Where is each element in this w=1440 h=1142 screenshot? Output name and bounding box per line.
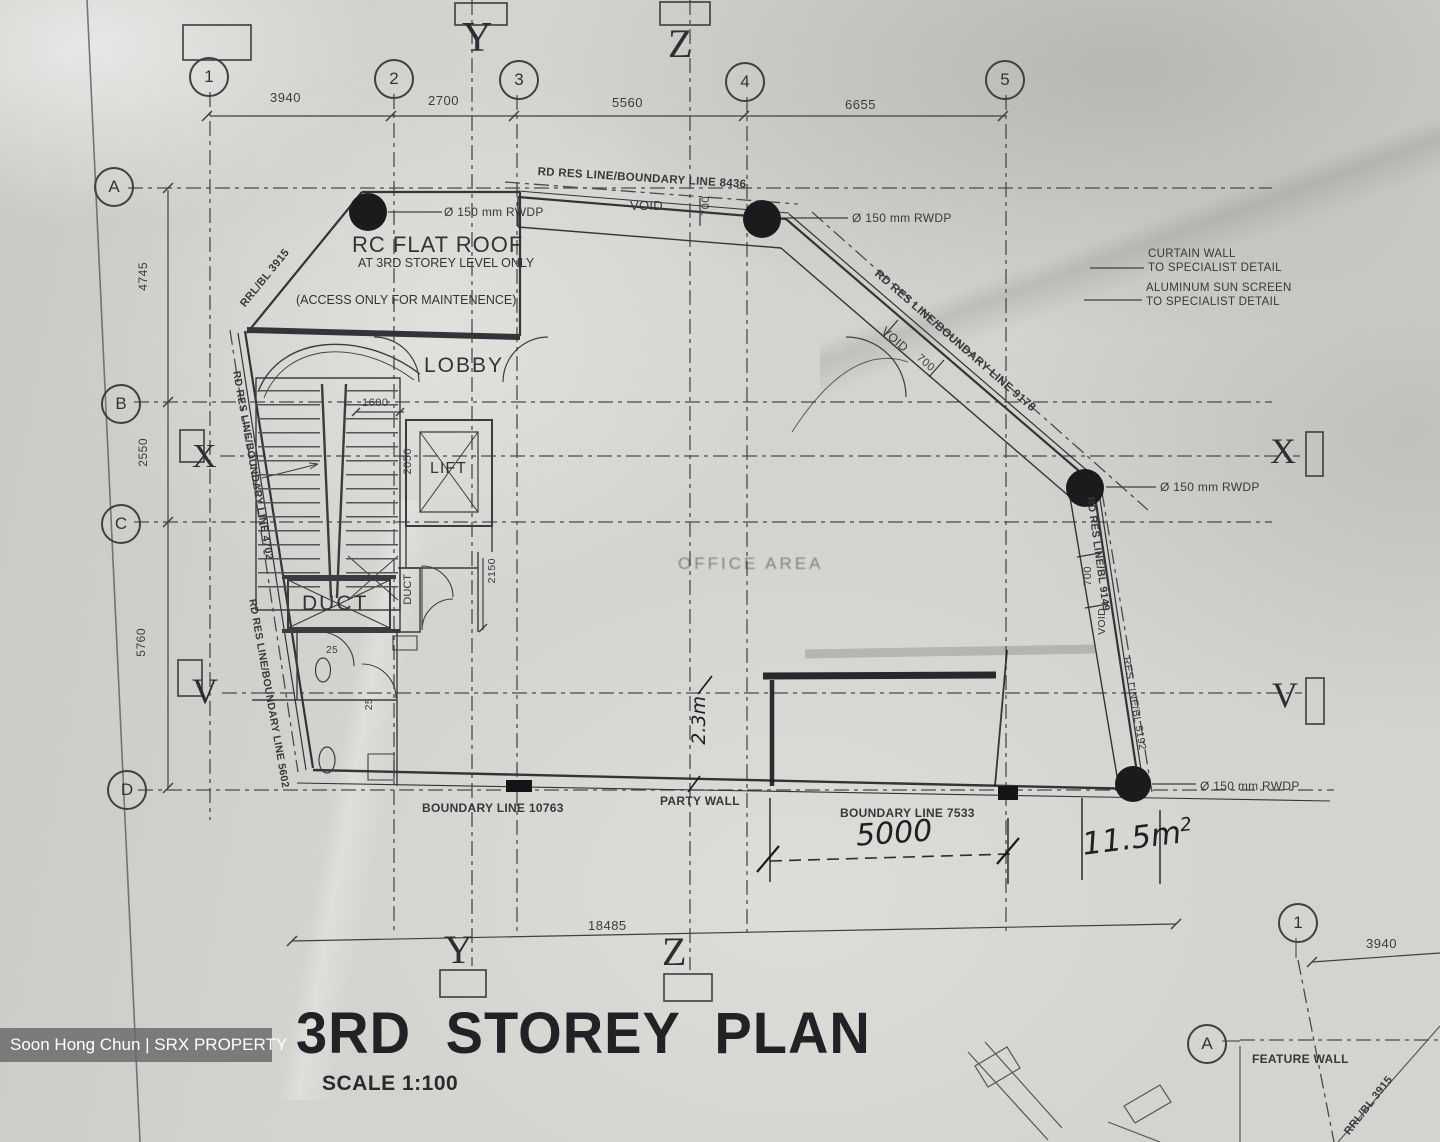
adjacent-grid-column-bubble: 1 [1278, 903, 1318, 943]
feature-wall-note: FEATURE WALL [1252, 1052, 1349, 1066]
grid-column-label: 1 [1293, 913, 1302, 933]
stair-treads-right [346, 390, 398, 600]
grid-row-label: B [115, 394, 126, 414]
section-y-bottom: Y [444, 926, 473, 973]
grid-row-label: C [115, 514, 127, 534]
grid-column-bubble: 5 [985, 60, 1025, 100]
grid-row-label: A [108, 177, 119, 197]
party-wall-label: PARTY WALL [660, 794, 740, 808]
dim-column-4-5: 6655 [845, 97, 876, 112]
section-x-right: X [1270, 430, 1296, 472]
grid-row-bubble: A [94, 167, 134, 207]
sun-screen-note: TO SPECIALIST DETAIL [1146, 296, 1280, 308]
section-v-right: V [1272, 674, 1298, 716]
duct-label: DUCT [302, 592, 368, 616]
grid-row-bubble: C [101, 504, 141, 544]
roof-access-note: (ACCESS ONLY FOR MAINTENENCE) [296, 293, 516, 307]
dim-wall-25: 25 [326, 645, 338, 656]
dim-column-2-3: 2700 [428, 93, 459, 108]
office-area-label: OFFICE AREA [678, 554, 823, 574]
grid-row-label: A [1201, 1034, 1212, 1054]
grid-column-bubble: 4 [725, 62, 765, 102]
roof-sublabel: AT 3RD STOREY LEVEL ONLY [358, 256, 534, 270]
dim-row-a-b: 4745 [136, 262, 150, 291]
boundary-bottom-left: BOUNDARY LINE 10763 [422, 801, 564, 815]
drawing-scale: SCALE 1:100 [322, 1072, 458, 1096]
rwdp-note: Ø 150 mm RWDP [444, 205, 544, 219]
dim-row-b-c: 2550 [136, 438, 150, 467]
duct-small-label: DUCT [402, 574, 414, 605]
section-v-left: V [192, 670, 218, 712]
grid-column-label: 3 [514, 70, 523, 90]
rwdp-note: Ø 150 mm RWDP [1200, 779, 1300, 793]
dim-void-right-700: 700 [1082, 566, 1094, 586]
dim-lift-depth: 2050 [402, 448, 414, 474]
void-top-label: VOID [630, 198, 663, 213]
dim-column-3-4: 5560 [612, 95, 643, 110]
watermark: Soon Hong Chun | SRX PROPERTY [0, 1028, 272, 1062]
grid-column-label: 2 [389, 69, 398, 89]
pen-marks [506, 649, 1160, 884]
curtain-wall-note: CURTAIN WALL [1148, 248, 1236, 260]
lift-label: LIFT [430, 460, 467, 478]
stair-treads-left [258, 390, 320, 600]
grid-column-bubble: 1 [189, 57, 229, 97]
dim-corner-3940: 3940 [1366, 936, 1397, 951]
section-z-top: Z [668, 20, 692, 67]
dim-column-1-2: 3940 [270, 90, 301, 105]
dim-void-top-700: 700 [700, 196, 712, 216]
grid-row-bubble: B [101, 384, 141, 424]
rwdp-dots [349, 193, 1151, 802]
dim-lift-front: 1600 [362, 397, 388, 409]
drawing-title: 3RD STOREY PLAN [296, 999, 871, 1067]
grid-column-bubble: 3 [499, 60, 539, 100]
dim-duct-depth: 2150 [486, 558, 498, 583]
roof-label: RC FLAT ROOF [352, 232, 523, 258]
void-right-label: VOID [1096, 608, 1108, 635]
section-x-left: X [192, 438, 217, 476]
grid-column-label: 4 [740, 72, 749, 92]
dim-wall-25: 25 [364, 698, 375, 710]
area-sup: 2 [1179, 814, 1193, 836]
dim-overall-width: 18485 [588, 918, 627, 933]
curtain-wall-note: TO SPECIALIST DETAIL [1148, 262, 1282, 274]
grid-row-label: D [121, 780, 133, 800]
grid-column-bubble: 2 [374, 59, 414, 99]
lobby-label: LOBBY [424, 354, 504, 378]
sun-screen-note: ALUMINUM SUN SCREEN [1146, 282, 1292, 294]
handwritten-dim-5000: 5000 [855, 813, 934, 853]
section-y-top: Y [462, 14, 492, 62]
adjacent-grid-row-bubble: A [1187, 1024, 1227, 1064]
dim-row-c-d: 5760 [134, 628, 148, 657]
handwritten-vertical-note: 2.3m [688, 696, 710, 745]
grid-column-label: 5 [1000, 70, 1009, 90]
grid-column-label: 1 [204, 67, 213, 87]
floor-plan-photo: 1 2 3 4 5 A B C D 1 A 3940 2700 5560 665… [0, 0, 1440, 1142]
grid-row-bubble: D [107, 770, 147, 810]
section-z-bottom: Z [662, 928, 686, 975]
rwdp-note: Ø 150 mm RWDP [1160, 480, 1260, 494]
rwdp-note: Ø 150 mm RWDP [852, 211, 952, 225]
